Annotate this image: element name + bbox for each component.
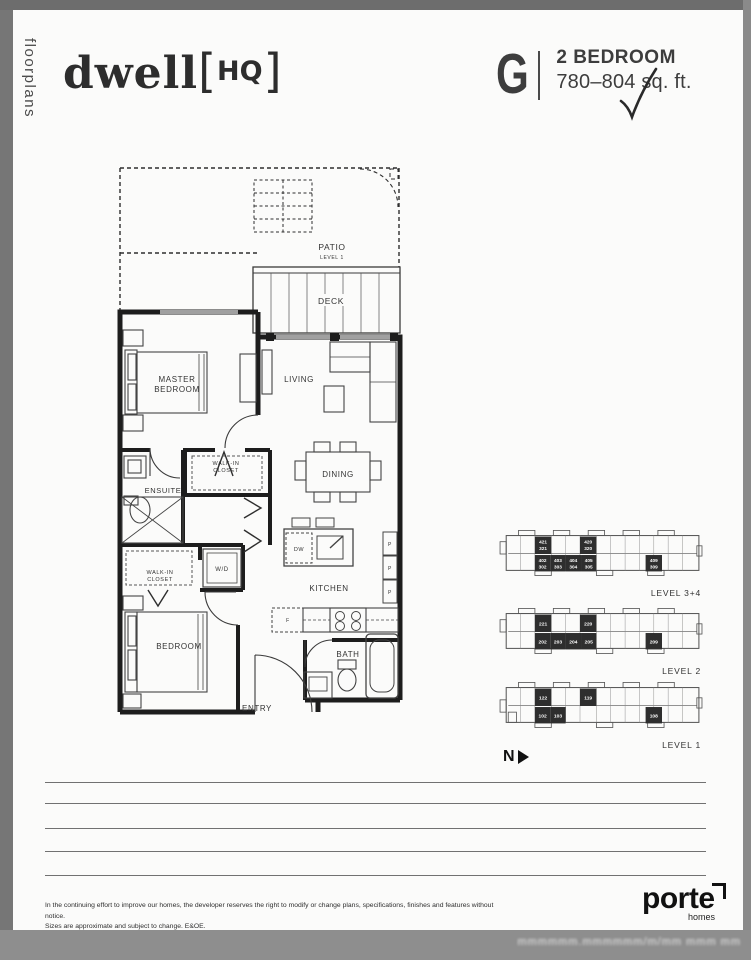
dwell-hq-logo: dwell [ HQ ] — [63, 48, 282, 99]
keyplan-level-3-4: 421 321 420 320 402 302 403 303 404 304 … — [498, 518, 705, 598]
brand-bracket-close: ] — [264, 48, 282, 94]
floorplan-sheet: mmmmmm.mmmmmm/m/mm mmm mm floorplans dwe… — [0, 0, 751, 960]
unit-number: 103 — [554, 713, 562, 719]
note-line — [45, 782, 706, 783]
unit-number: 320 — [584, 546, 592, 551]
kitchen-label: KITCHEN — [309, 584, 348, 593]
unit-floorplan-drawing: PATIO LEVEL 1 DECK MASTER BEDROOM LIVING… — [108, 155, 408, 725]
unit-number: 405 — [585, 558, 593, 563]
disclaimer: In the continuing effort to improve our … — [45, 901, 515, 933]
north-label: N — [503, 748, 515, 766]
unit-number: 221 — [539, 621, 547, 627]
pantry-label-2: P — [388, 566, 392, 572]
wd-label: W/D — [215, 567, 229, 573]
plan-divider — [538, 51, 540, 100]
brand-dwell: dwell — [63, 48, 198, 99]
handwritten-checkmark-icon — [610, 60, 668, 126]
master-label-1: MASTER — [159, 375, 196, 384]
disclaimer-line-1: In the continuing effort to improve our … — [45, 901, 515, 922]
bedroom-bed — [123, 596, 207, 708]
unit-number: 321 — [539, 546, 547, 551]
fridge-label: F — [286, 618, 290, 624]
dw-label: DW — [294, 547, 305, 553]
unit-number: 102 — [538, 713, 546, 719]
scan-watermark: mmmmmm.mmmmmm/m/mm mmm mm — [517, 936, 741, 948]
entry-label: ENTRY — [242, 704, 272, 713]
bath-label: BATH — [336, 650, 359, 659]
patio-outline — [120, 168, 399, 310]
unit-number: 402 — [539, 558, 547, 563]
unit-number: 203 — [554, 639, 562, 645]
keyplan-level-label: LEVEL 1 — [498, 740, 705, 750]
page-border-top — [0, 0, 751, 10]
plan-letter: G — [496, 47, 527, 101]
north-arrow-icon — [518, 750, 529, 764]
kitchen-island — [284, 518, 353, 566]
walkin1-label-2: CLOSET — [213, 468, 239, 474]
unit-number: 204 — [569, 639, 577, 645]
unit-number: 403 — [554, 558, 562, 563]
master-label-2: BEDROOM — [154, 385, 200, 394]
note-line — [45, 875, 706, 876]
stairs — [254, 180, 312, 232]
kitchen-counter — [272, 608, 398, 632]
walkin1-label-1: WALK-IN — [213, 461, 240, 467]
unit-number: 409 — [650, 558, 658, 563]
deck-label: DECK — [318, 296, 344, 306]
unit-number: 304 — [569, 564, 577, 569]
unit-number: 108 — [650, 713, 658, 719]
porte-corner-bracket-icon — [712, 883, 726, 899]
unit-number: 420 — [584, 540, 592, 545]
note-line — [45, 828, 706, 829]
dining-label: DINING — [322, 470, 354, 479]
north-indicator: N — [503, 748, 529, 766]
note-line — [45, 803, 706, 804]
keyplan-level-1: 122 119 102 103 108 LEVEL 1 — [498, 670, 705, 750]
pantry-label-3: P — [388, 590, 392, 596]
unit-number: 202 — [538, 639, 546, 645]
keyplan-level-2: 221 220 202 203 204 205 209 LEVEL 2 — [498, 596, 705, 676]
unit-number: 302 — [539, 564, 547, 569]
unit-number: 209 — [650, 639, 658, 645]
page-border-right — [743, 0, 751, 935]
patio-label: PATIO — [318, 242, 345, 252]
unit-number: 122 — [539, 695, 547, 701]
porte-logo-text: porte — [642, 884, 718, 914]
walkin2-label-1: WALK-IN — [147, 570, 174, 576]
unit-number: 303 — [554, 564, 562, 569]
living-label: LIVING — [284, 375, 314, 384]
floorplans-vertical-label: floorplans — [21, 38, 38, 118]
unit-number: 205 — [585, 639, 593, 645]
ensuite-fixtures — [122, 456, 183, 543]
bedroom-label: BEDROOM — [156, 642, 202, 651]
master-dresser — [240, 354, 256, 402]
unit-number: 309 — [650, 564, 658, 569]
unit-number: 305 — [585, 564, 593, 569]
ensuite-label: ENSUITE — [145, 486, 182, 495]
brand-bracket-open: [ — [198, 48, 216, 94]
unit-number: 119 — [584, 695, 592, 701]
page-border-left — [0, 0, 13, 960]
pantry-label-1: P — [388, 542, 392, 548]
unit-number: 220 — [584, 621, 592, 627]
living-sofa — [262, 342, 396, 422]
walkin2-label-2: CLOSET — [147, 577, 173, 583]
unit-number: 404 — [569, 558, 577, 563]
note-line — [45, 851, 706, 852]
brand-hq: HQ — [217, 56, 263, 87]
porte-homes-logo: porte homes — [642, 884, 718, 922]
unit-number: 421 — [539, 540, 547, 545]
patio-sub-label: LEVEL 1 — [320, 255, 344, 261]
